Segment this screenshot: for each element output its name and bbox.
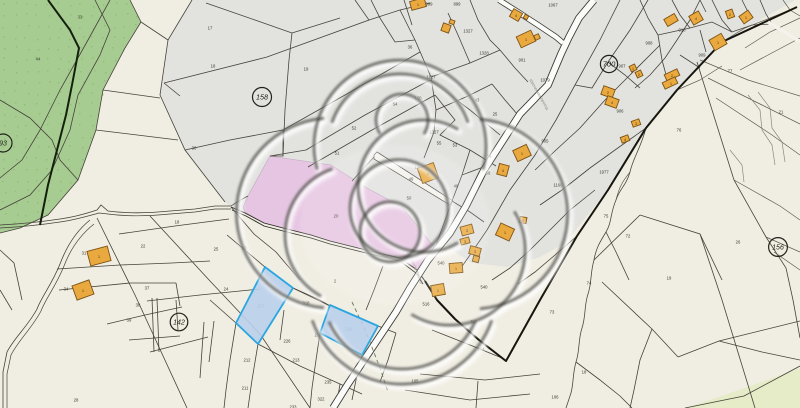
svg-text:77: 77 [728,69,733,74]
svg-text:540: 540 [481,285,489,290]
svg-text:25: 25 [493,112,498,117]
svg-text:2: 2 [607,91,609,95]
svg-text:21: 21 [779,110,784,115]
svg-text:22: 22 [141,244,146,249]
svg-text:1327: 1327 [463,29,473,34]
svg-text:30: 30 [192,146,197,151]
svg-text:44: 44 [36,57,41,62]
svg-text:37: 37 [145,286,150,291]
svg-text:74: 74 [587,281,592,286]
svg-text:55: 55 [437,141,442,146]
svg-text:906: 906 [617,109,625,114]
svg-text:53: 53 [453,143,458,148]
svg-text:25: 25 [214,247,219,252]
svg-text:19: 19 [304,67,309,72]
svg-text:901: 901 [519,58,527,63]
svg-text:17: 17 [208,26,213,31]
svg-text:1: 1 [504,231,506,235]
svg-text:1328: 1328 [479,51,489,56]
svg-text:34: 34 [64,287,69,292]
svg-text:700: 700 [603,60,616,69]
svg-text:1: 1 [521,152,523,156]
svg-text:26: 26 [736,240,741,245]
svg-text:142: 142 [173,320,185,327]
svg-text:18: 18 [175,220,180,225]
svg-text:233: 233 [290,405,298,408]
svg-text:1: 1 [745,16,747,20]
svg-text:1977: 1977 [599,170,609,175]
svg-text:211: 211 [242,386,249,391]
svg-text:2: 2 [638,73,640,77]
svg-text:1: 1 [717,41,719,45]
svg-text:907: 907 [619,64,627,69]
svg-text:905: 905 [542,139,550,144]
svg-text:1: 1 [670,82,672,86]
svg-text:1: 1 [632,67,634,71]
svg-text:24: 24 [224,287,229,292]
svg-text:52: 52 [352,126,357,131]
svg-text:516: 516 [423,302,431,307]
svg-text:51: 51 [335,151,340,156]
svg-text:999: 999 [426,2,434,7]
svg-text:33: 33 [78,15,83,20]
svg-text:38: 38 [136,303,141,308]
svg-text:4: 4 [695,17,697,21]
svg-text:4: 4 [611,101,613,105]
svg-text:4: 4 [502,169,504,173]
svg-text:899: 899 [454,2,462,7]
svg-text:4: 4 [515,14,517,18]
svg-text:1067: 1067 [548,3,558,8]
svg-text:39: 39 [127,318,132,323]
svg-text:1: 1 [417,3,419,7]
svg-text:4: 4 [624,138,626,142]
svg-text:19: 19 [667,276,672,281]
svg-text:106: 106 [552,395,560,400]
svg-text:158: 158 [256,93,268,102]
svg-text:36: 36 [408,45,413,50]
svg-text:212: 212 [244,358,252,363]
svg-text:31: 31 [82,251,87,256]
svg-text:28: 28 [74,398,79,403]
svg-text:1: 1 [82,289,84,293]
svg-text:213: 213 [293,358,301,363]
svg-text:2: 2 [671,74,673,78]
svg-text:3: 3 [635,122,637,126]
svg-text:235: 235 [325,380,333,385]
svg-text:72: 72 [626,234,631,239]
svg-text:73: 73 [550,310,555,315]
svg-text:1: 1 [525,38,527,42]
svg-text:2: 2 [729,13,731,17]
svg-text:18: 18 [582,370,587,375]
svg-text:908: 908 [646,41,654,46]
svg-text:322: 322 [318,397,326,402]
svg-text:156: 156 [772,245,784,252]
svg-text:1: 1 [98,255,100,259]
svg-text:1079: 1079 [540,78,550,83]
svg-text:93: 93 [0,141,7,148]
svg-text:226: 226 [284,339,292,344]
svg-text:909: 909 [699,53,707,58]
svg-text:18: 18 [211,64,216,69]
svg-text:76: 76 [677,128,682,133]
svg-text:910: 910 [679,28,687,33]
svg-text:75: 75 [604,214,609,219]
